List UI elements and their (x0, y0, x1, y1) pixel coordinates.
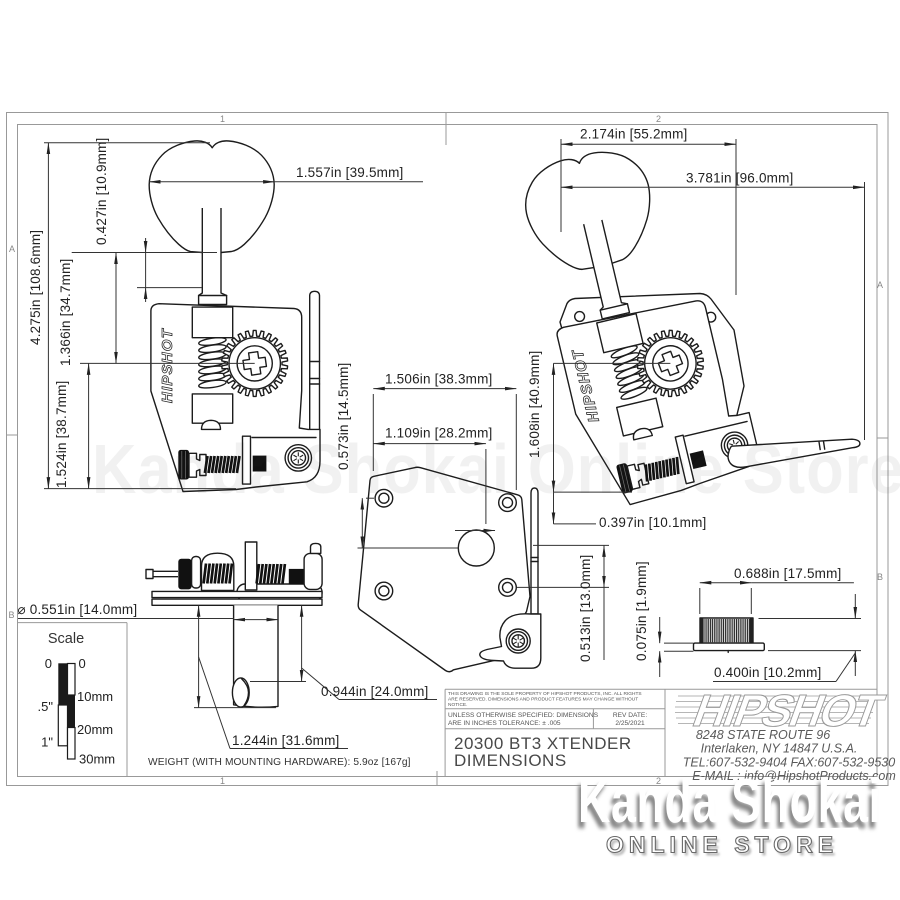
svg-text:1.506in [38.3mm]: 1.506in [38.3mm] (385, 372, 493, 387)
svg-text:REV DATE:: REV DATE: (613, 712, 647, 719)
svg-text:0.427in [10.9mm]: 0.427in [10.9mm] (94, 137, 109, 245)
svg-text:0.400in [10.2mm]: 0.400in [10.2mm] (714, 665, 822, 680)
svg-text:Interlaken, NY 14847 U.S.A.: Interlaken, NY 14847 U.S.A. (701, 742, 858, 756)
svg-text:1.524in [38.7mm]: 1.524in [38.7mm] (54, 380, 69, 488)
svg-text:10mm: 10mm (77, 689, 113, 704)
svg-text:WEIGHT (WITH MOUNTING HARDWARE: WEIGHT (WITH MOUNTING HARDWARE): 5.9oz [… (148, 757, 411, 768)
svg-text:30mm: 30mm (79, 752, 115, 767)
svg-text:ONLINE STORE: ONLINE STORE (606, 832, 838, 858)
svg-text:.5": .5" (38, 699, 54, 714)
svg-text:0.397in [10.1mm]: 0.397in [10.1mm] (599, 515, 707, 530)
svg-text:A: A (877, 280, 883, 290)
svg-text:20mm: 20mm (77, 722, 113, 737)
svg-text:8248 STATE ROUTE 96: 8248 STATE ROUTE 96 (696, 728, 830, 742)
svg-text:1.244in [31.6mm]: 1.244in [31.6mm] (232, 733, 340, 748)
svg-text:ARE IN INCHES TOLERANCE: ± .0: ARE IN INCHES TOLERANCE: ± .005 (448, 720, 561, 727)
svg-text:1.557in [39.5mm]: 1.557in [39.5mm] (296, 165, 404, 180)
svg-text:0.075in [1.9mm]: 0.075in [1.9mm] (634, 561, 649, 661)
svg-text:B: B (9, 610, 15, 620)
svg-text:1: 1 (220, 114, 225, 124)
svg-text:1": 1" (41, 735, 53, 750)
svg-text:HIPSHOT: HIPSHOT (159, 327, 176, 403)
svg-text:ARE RESERVED. DIMENSIONS AND P: ARE RESERVED. DIMENSIONS AND PRODUCT FEA… (448, 697, 638, 703)
svg-text:DIMENSIONS: DIMENSIONS (454, 751, 567, 770)
svg-text:2/25/2021: 2/25/2021 (615, 720, 645, 727)
svg-text:0: 0 (45, 656, 52, 671)
svg-text:THIS DRAWING IS THE SOLE PROPE: THIS DRAWING IS THE SOLE PROPERTY OF HIP… (448, 691, 642, 697)
svg-text:UNLESS OTHERWISE SPECIFIED: DI: UNLESS OTHERWISE SPECIFIED: DIMENSIONS (448, 712, 599, 719)
svg-text:1: 1 (220, 776, 225, 786)
svg-text:NOTICE.: NOTICE. (448, 702, 467, 708)
svg-text:0.688in [17.5mm]: 0.688in [17.5mm] (734, 566, 842, 581)
svg-text:0: 0 (79, 656, 86, 671)
svg-text:4.275in [108.6mm]: 4.275in [108.6mm] (28, 230, 43, 345)
svg-text:1.366in [34.7mm]: 1.366in [34.7mm] (58, 258, 73, 366)
svg-text:⌀ 0.551in [14.0mm]: ⌀ 0.551in [14.0mm] (18, 602, 138, 617)
svg-text:0.513in [13.0mm]: 0.513in [13.0mm] (578, 554, 593, 662)
svg-text:Kanda Shokai: Kanda Shokai (578, 767, 882, 836)
svg-text:A: A (9, 244, 15, 254)
svg-text:2: 2 (656, 114, 661, 124)
svg-text:B: B (877, 572, 883, 582)
svg-text:2.174in [55.2mm]: 2.174in [55.2mm] (580, 127, 688, 142)
svg-text:Scale: Scale (48, 631, 84, 647)
svg-text:Kanda Shokai Online Store: Kanda Shokai Online Store (92, 429, 900, 508)
svg-text:3.781in [96.0mm]: 3.781in [96.0mm] (686, 171, 794, 186)
svg-text:0.944in [24.0mm]: 0.944in [24.0mm] (321, 684, 429, 699)
